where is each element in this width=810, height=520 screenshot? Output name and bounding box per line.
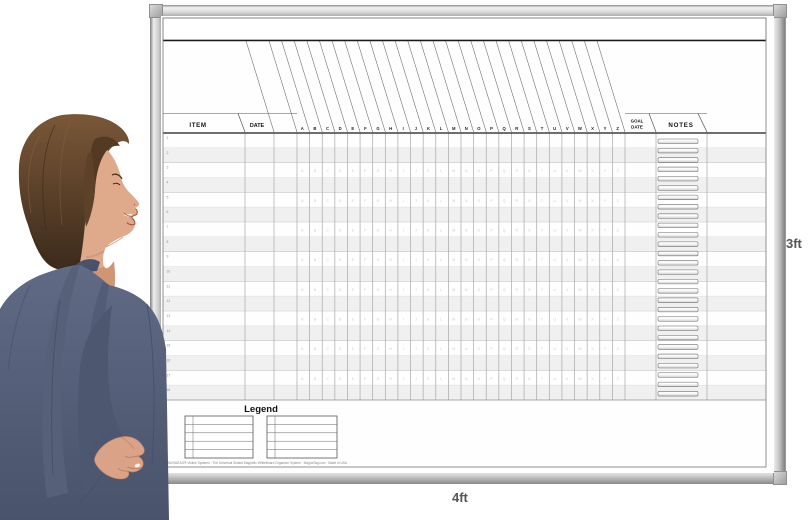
note-strip [658,158,698,163]
svg-text:F: F [364,199,366,203]
svg-text:M: M [452,258,455,262]
column-letter: B [313,126,316,131]
column-letter: G [376,126,379,131]
svg-text:Q: Q [503,288,506,292]
note-strip [658,289,698,294]
svg-text:J: J [415,377,417,381]
svg-text:I: I [403,169,404,173]
note-strip [658,233,698,238]
note-strip [658,270,698,275]
note-strip [658,279,698,284]
svg-text:O: O [478,318,481,322]
column-letter: R [515,126,518,131]
svg-text:J: J [415,258,417,262]
svg-text:L: L [440,377,442,381]
svg-text:M: M [452,347,455,351]
column-letter: U [553,126,556,131]
svg-text:M: M [452,199,455,203]
svg-text:L: L [440,347,442,351]
column-letter: X [591,126,594,131]
svg-text:F: F [364,169,366,173]
scene: 3ft 4ft ABCDEFGHIJKLMNOPQRSTUVWXYZ ABC [0,0,810,520]
note-strip [658,242,698,247]
svg-text:J: J [415,288,417,292]
title-band [163,18,766,40]
note-strip [658,204,698,209]
whiteboard: ABCDEFGHIJKLMNOPQRSTUVWXYZ ABCDEFGHIJKLM… [150,5,786,484]
svg-text:O: O [478,169,481,173]
svg-text:M: M [452,318,455,322]
column-letter: W [578,126,582,131]
svg-text:O: O [478,288,481,292]
column-letter: Y [604,126,607,131]
column-letter: F [364,126,367,131]
svg-text:F: F [364,288,366,292]
svg-text:G: G [377,258,380,262]
svg-text:G: G [377,377,380,381]
svg-text:Q: Q [503,258,506,262]
svg-text:I: I [403,258,404,262]
svg-text:G: G [377,347,380,351]
svg-text:F: F [364,318,366,322]
width-dimension-label: 4ft [452,490,468,505]
column-header-goal-date-line2: DATE [631,125,643,130]
svg-text:Q: Q [503,169,506,173]
svg-text:I: I [403,199,404,203]
note-strip [658,354,698,359]
column-header-date: DATE [250,123,265,129]
note-strip [658,363,698,368]
column-letter: L [440,126,443,131]
svg-text:M: M [452,229,455,233]
svg-text:Q: Q [503,318,506,322]
svg-text:I: I [403,347,404,351]
note-strip [658,345,698,350]
svg-text:G: G [377,229,380,233]
woman-photo [0,95,200,520]
column-letter: M [452,126,456,131]
note-strip [658,307,698,312]
svg-text:J: J [415,229,417,233]
svg-text:Q: Q [503,347,506,351]
svg-text:Q: Q [503,377,506,381]
column-letter: S [528,126,531,131]
note-strip [658,391,698,396]
svg-text:O: O [478,199,481,203]
note-strip [658,195,698,200]
svg-text:G: G [377,288,380,292]
note-strip [658,382,698,387]
svg-text:M: M [452,288,455,292]
svg-text:L: L [440,169,442,173]
column-letter: K [427,126,430,131]
note-strip [658,317,698,322]
height-dimension-label: 3ft [786,236,802,251]
svg-text:L: L [440,288,442,292]
column-letter: P [490,126,493,131]
svg-text:J: J [415,199,417,203]
svg-text:L: L [440,229,442,233]
svg-text:J: J [415,169,417,173]
svg-text:M: M [452,169,455,173]
svg-text:O: O [478,229,481,233]
column-letter: E [351,126,354,131]
column-header-notes: NOTES [668,122,693,129]
legend-table [267,416,337,458]
svg-text:I: I [403,288,404,292]
svg-text:I: I [403,318,404,322]
svg-text:M: M [452,377,455,381]
svg-text:L: L [440,318,442,322]
column-letter: A [301,126,304,131]
svg-text:F: F [364,377,366,381]
note-strip [658,326,698,331]
svg-text:F: F [364,347,366,351]
svg-text:Q: Q [503,229,506,233]
svg-text:L: L [440,258,442,262]
note-strip [658,139,698,144]
column-letter: V [566,126,569,131]
svg-text:O: O [478,258,481,262]
svg-text:J: J [415,318,417,322]
note-strip [658,176,698,181]
svg-text:G: G [377,318,380,322]
svg-text:G: G [377,169,380,173]
svg-text:F: F [364,258,366,262]
note-strip [658,373,698,378]
column-letter: Z [616,126,619,131]
svg-text:I: I [403,229,404,233]
column-letter: H [389,126,392,131]
svg-text:L: L [440,199,442,203]
note-strip [658,298,698,303]
svg-text:O: O [478,377,481,381]
note-strip [658,335,698,340]
svg-text:I: I [403,377,404,381]
note-strip [658,186,698,191]
legend-title: Legend [244,404,278,415]
svg-text:G: G [377,199,380,203]
note-strip [658,167,698,172]
column-letter: D [339,126,342,131]
column-letter: C [326,126,329,131]
note-strip [658,148,698,153]
note-strip [658,261,698,266]
board-print: ABCDEFGHIJKLMNOPQRSTUVWXYZ ABCDEFGHIJKLM… [150,5,786,484]
note-strip [658,251,698,256]
column-letter: N [465,126,468,131]
column-header-goal-date-line1: GOAL [631,119,644,124]
svg-text:O: O [478,347,481,351]
svg-text:F: F [364,229,366,233]
column-letter: I [403,126,404,131]
column-letter: T [541,126,544,131]
note-strip [658,223,698,228]
svg-text:Q: Q [503,199,506,203]
note-strip [658,214,698,219]
svg-text:J: J [415,347,417,351]
